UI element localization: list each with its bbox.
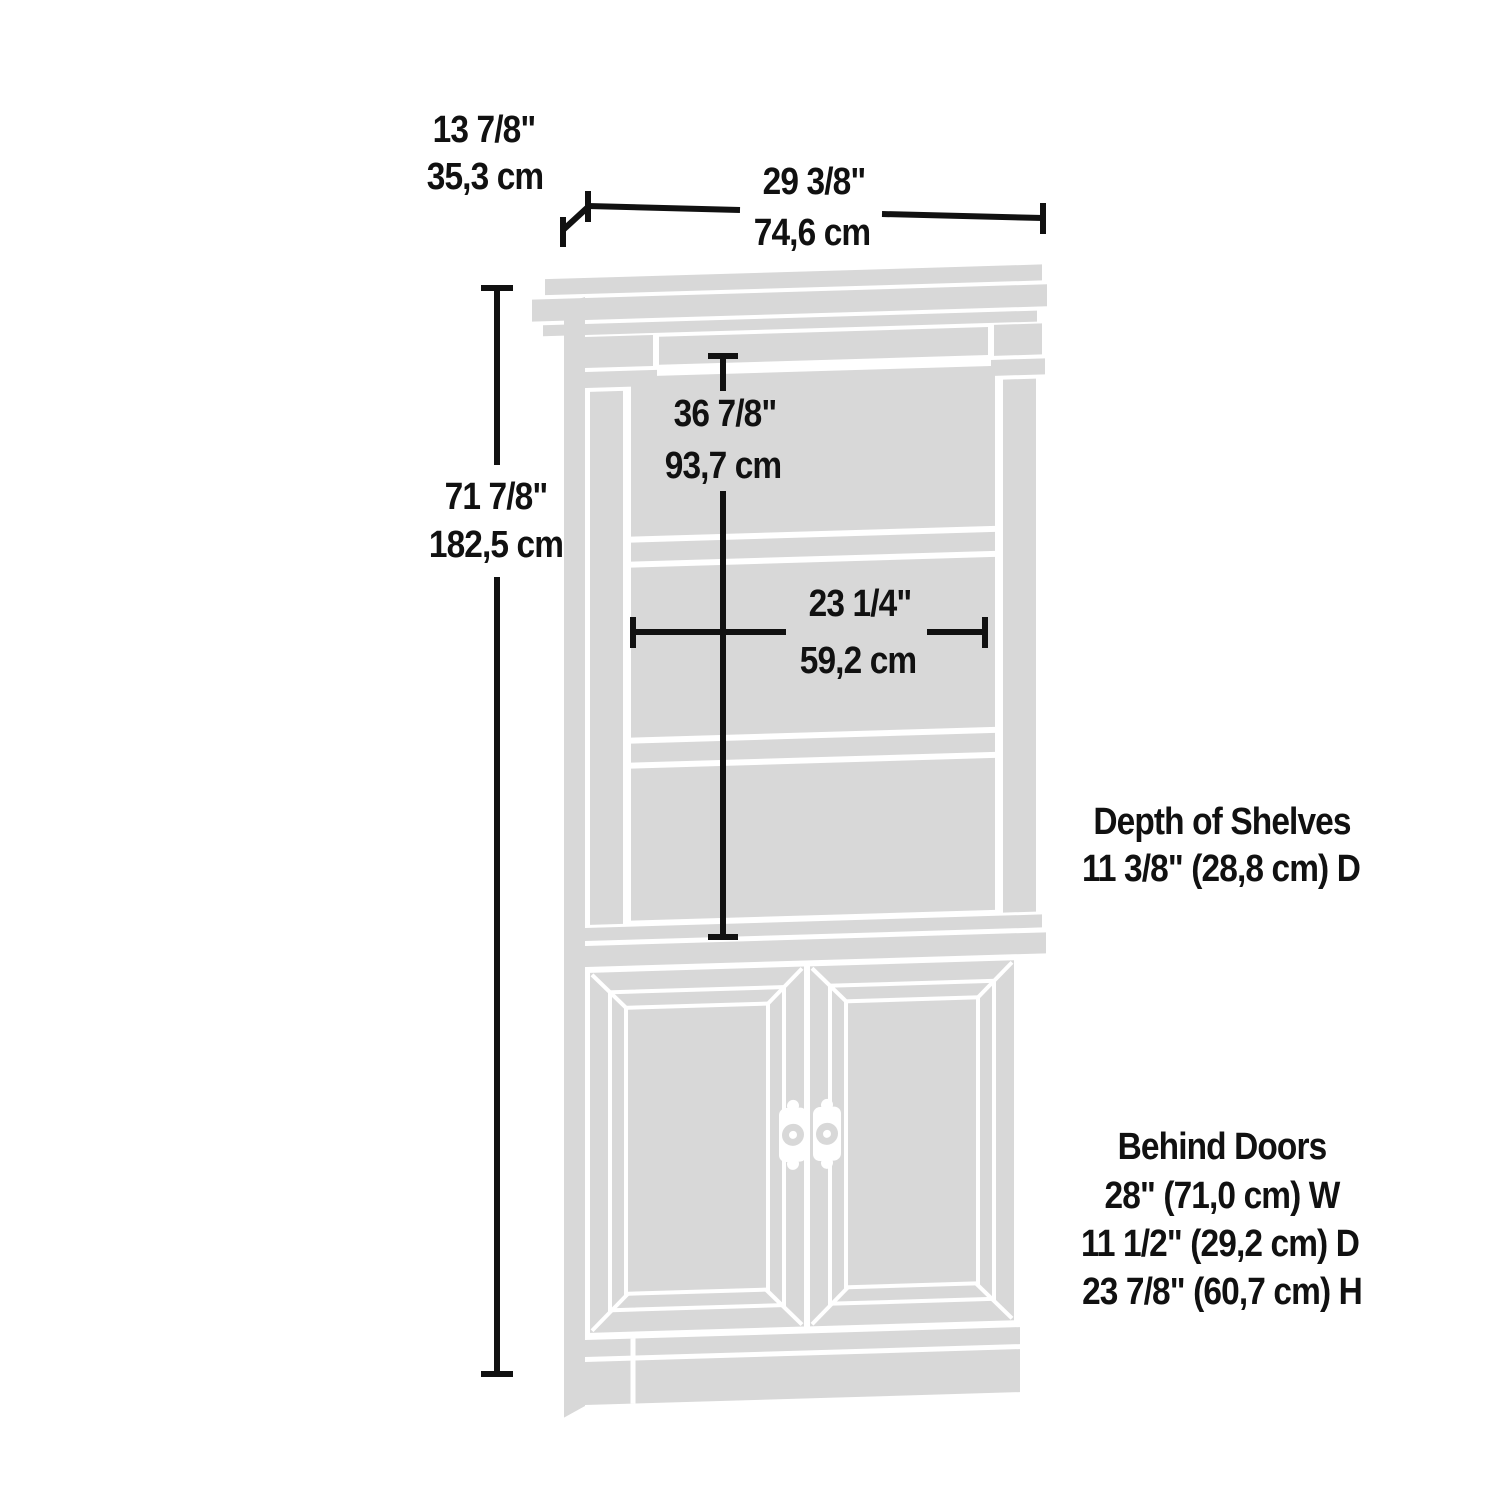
height-label-metric: 182,5 cm [429,526,563,564]
dim-line-height [481,288,513,1374]
width-label-metric: 74,6 cm [754,214,871,252]
behind-doors-width: 28" (71,0 cm) W [1105,1177,1340,1215]
interior-height-label-inches: 36 7/8" [674,395,777,433]
interior-height-label-metric: 93,7 cm [665,447,782,485]
shelf-depth-value: 11 3/8" (28,8 cm) D [1082,850,1360,888]
depth-label-metric: 35,3 cm [427,158,544,196]
interior-width-label-inches: 23 1/4" [809,585,912,623]
behind-doors-depth: 11 1/2" (29,2 cm) D [1081,1225,1359,1263]
door-left [590,967,804,1333]
header-panel [659,327,988,365]
behind-doors-height: 23 7/8" (60,7 cm) H [1082,1273,1362,1311]
capital-right [994,323,1042,355]
side-panel [564,297,585,1418]
diagram-canvas: 13 7/8" 35,3 cm 29 3/8" 74,6 cm 71 7/8" … [0,0,1500,1500]
shelf-depth-title: Depth of Shelves [1093,803,1350,841]
shelf-opening-bottom [631,758,995,921]
base-plinth [585,1349,1020,1405]
door-handle-right [813,1098,841,1169]
pilaster-right [1003,379,1036,913]
bookcase [532,264,1047,1418]
behind-doors-title: Behind Doors [1118,1128,1327,1166]
height-label-inches: 71 7/8" [445,478,548,516]
dim-line-depth [563,207,588,247]
door-handle-left [779,1099,807,1170]
capital-left [585,335,653,368]
width-label-inches: 29 3/8" [763,163,866,201]
interior-width-label-metric: 59,2 cm [800,642,917,680]
pilaster-left [590,391,623,925]
shelf-2 [631,733,995,763]
shelf-1 [631,532,995,562]
depth-label-inches: 13 7/8" [433,111,536,149]
capital-molding-right [991,358,1045,376]
